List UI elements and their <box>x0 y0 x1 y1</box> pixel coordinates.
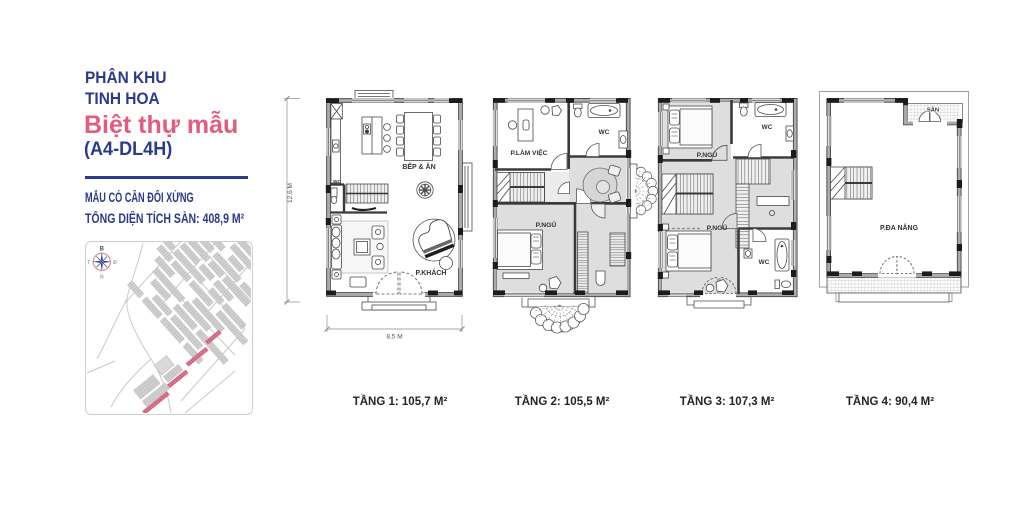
svg-text:P.NGỦ: P.NGỦ <box>707 223 728 232</box>
svg-text:WC: WC <box>759 259 770 266</box>
svg-text:WC: WC <box>599 129 610 136</box>
svg-text:12,6 M: 12,6 M <box>287 183 294 203</box>
svg-text:P.KHÁCH: P.KHÁCH <box>416 268 447 277</box>
svg-text:8,5 M: 8,5 M <box>386 334 402 341</box>
svg-text:P.NGỦ: P.NGỦ <box>697 150 718 159</box>
svg-text:SÂN: SÂN <box>927 107 939 114</box>
svg-text:P.NGỦ: P.NGỦ <box>536 220 557 229</box>
svg-text:P.LÀM VIỆC: P.LÀM VIỆC <box>511 148 548 157</box>
svg-text:P.ĐA NĂNG: P.ĐA NĂNG <box>880 223 919 232</box>
svg-text:WC: WC <box>762 124 773 131</box>
svg-text:WC: WC <box>333 179 341 184</box>
